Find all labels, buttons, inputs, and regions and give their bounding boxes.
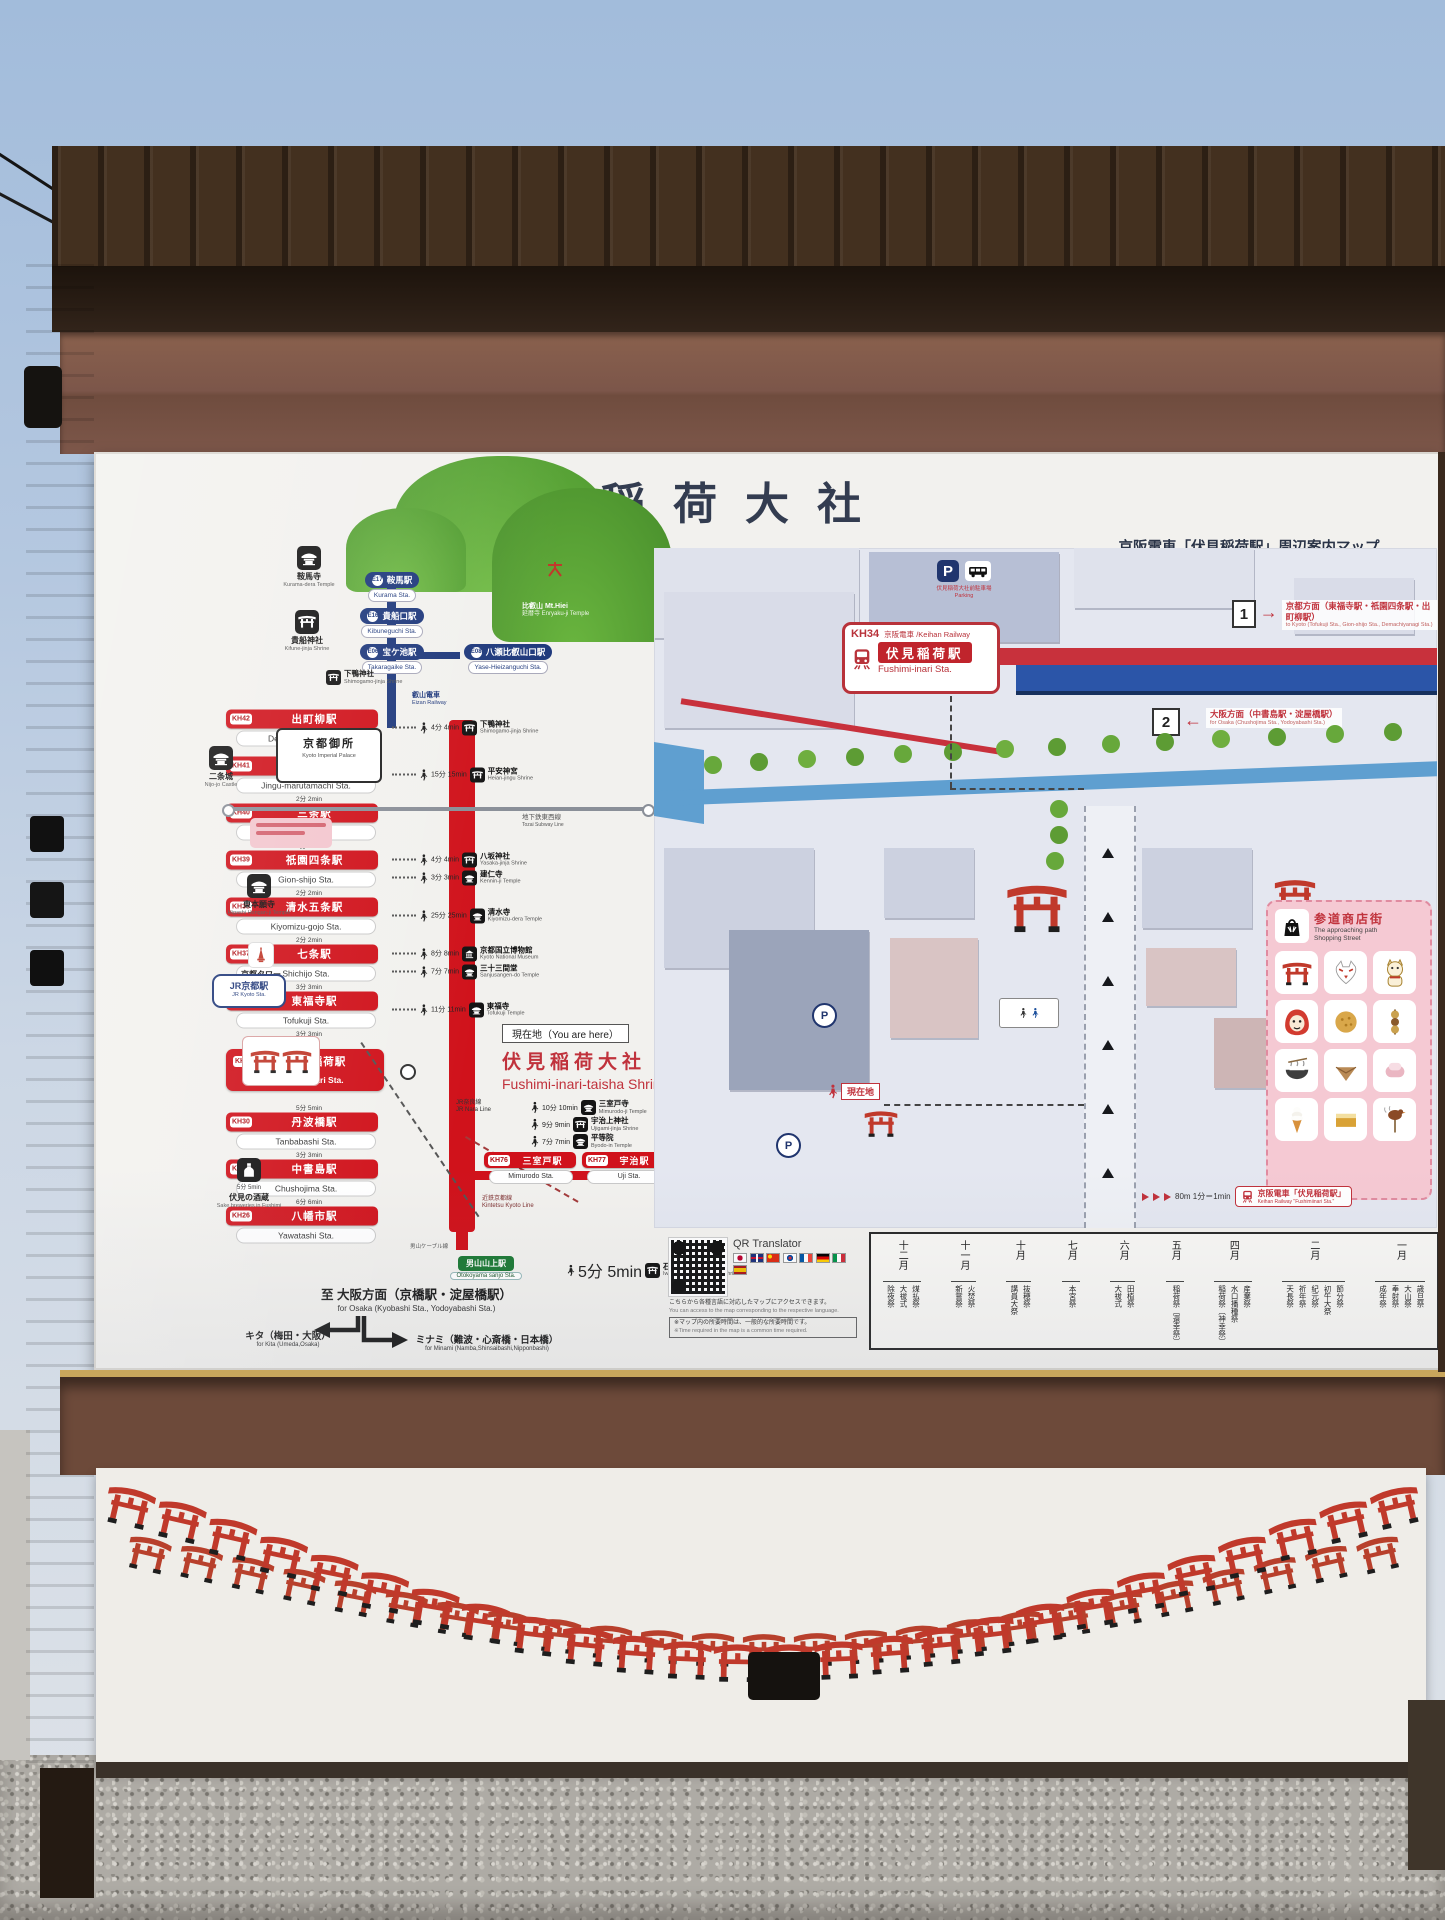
attraction-entry: 3分 3min 建仁寺Kennin-ji Temple [392, 870, 527, 885]
poi-icon [573, 1117, 588, 1132]
landmark-walk-time: 5分 5min [237, 1182, 261, 1191]
torii-icon [864, 1108, 898, 1138]
language-flags [733, 1253, 853, 1275]
walking-person-icon [566, 1264, 575, 1277]
festival-name: 成年祭 [1377, 1285, 1388, 1342]
eizan-station-name-ja: 鞍馬駅 [387, 574, 413, 586]
post-hinge [30, 882, 64, 918]
keihan-station-row: 2分 2min KH37七条駅 Shichijo Sta. 8分 8min 京都… [124, 939, 669, 986]
festival-name: 産業祭 [1241, 1285, 1252, 1342]
calendar-month-column: 二月 節分祭初午大祭紀元祭祈年祭天長祭 [1282, 1240, 1345, 1342]
top-frame-beam [60, 332, 1445, 454]
uji-station: KH77宇治駅 Uji Sta. [582, 1152, 662, 1184]
structure-leg [1408, 1700, 1445, 1870]
mt-hiei-label: 比叡山 Mt.Hiei 延暦寺 Enryaku-ji Temple [522, 602, 589, 619]
month-label: 十一月 [956, 1240, 971, 1279]
station-platform [1016, 665, 1437, 695]
eizan-station-code: E06 [367, 647, 378, 658]
festival-name: 奉射祭 [1390, 1285, 1401, 1342]
walking-person-icon [419, 871, 428, 884]
tozai-subway-label: 地下鉄東西線Tozai Subway Line [522, 814, 564, 828]
fushimi-inari-station-sign: KH34京阪電車 /Keihan Railway 伏見稲荷駅 Fushimi-i… [842, 622, 1000, 694]
attraction-name-en: Yasaka-jinja Shrine [480, 861, 527, 867]
festival-list: 火焚祭新嘗祭 [951, 1285, 976, 1342]
festival-list: 本宮祭 [1065, 1285, 1078, 1342]
walking-route [950, 696, 952, 788]
calendar-month-column: 七月 本宮祭 [1062, 1240, 1080, 1342]
divider [1375, 1281, 1425, 1282]
eizan-station-name-en: Kibuneguchi Sta. [361, 625, 422, 638]
jr-inari-station-marker [400, 1064, 416, 1080]
landmark-icon [237, 1158, 261, 1182]
station-number: KH30 [230, 1116, 252, 1127]
walk-leader-line [392, 915, 416, 917]
eizan-station-name-ja: 貴船口駅 [382, 610, 416, 622]
attraction-name-en: Tofukuji Temple [487, 1011, 525, 1017]
walk-time: 11分 11min [431, 1005, 466, 1015]
keihan-station-row: 2分 2min KH39祇園四条駅 Gion-shijo Sta. 4分 4mi… [124, 845, 669, 892]
walk-leader-line [392, 774, 416, 776]
parking-marker: P [776, 1133, 801, 1158]
gravel-ground [0, 1755, 1445, 1920]
attraction-name-ja: 平安神宮 [488, 767, 533, 776]
station-attractions: 11分 11min 東福寺Tofukuji Temple [392, 1002, 525, 1017]
panel-shadow [96, 1762, 1426, 1778]
post-bracket [24, 366, 62, 428]
uji-attractions: 10分 10min 三室戸寺Mimurodo-ji Temple 9分 9min… [530, 1100, 647, 1149]
shopping-street-legend: 参道商店街 The approaching path Shopping Stre… [1266, 900, 1432, 1200]
qr-translator-block: QR Translator こちらから各種言語に対応したマップにアクセスできます… [669, 1238, 859, 1338]
divider [1110, 1281, 1135, 1282]
festival-name: 歳旦祭 [1415, 1285, 1426, 1342]
attraction-entry: 4分 4min 八坂神社Yasaka-jinja Shrine [392, 852, 527, 867]
flag-icon [832, 1253, 846, 1263]
attraction-name-ja: 建仁寺 [480, 870, 521, 879]
landmark-icon [247, 874, 271, 898]
month-label: 五月 [1167, 1240, 1182, 1279]
eizan-station-name-ja: 八瀬比叡山口駅 [486, 646, 546, 658]
metal-clamp [748, 1652, 820, 1700]
calendar-month-column: 六月 田植祭大祓式 [1110, 1240, 1135, 1342]
poi-icon [462, 720, 477, 735]
attraction-entry: 10分 10min 三室戸寺Mimurodo-ji Temple [530, 1100, 647, 1115]
walk-time: 4分 4min [431, 723, 459, 733]
ride-time: 2分 2min [296, 793, 322, 803]
flag-icon [766, 1253, 780, 1263]
keihan-station-row: 2分 2min KH38清水五条駅 Kiyomizu-gojo Sta. 25分… [124, 892, 669, 939]
walk-time: 25分 25min [431, 911, 467, 921]
daruma [1275, 1000, 1318, 1043]
landmark-name-en: Nijo-jo Castle [205, 782, 238, 788]
landmark-name-ja: 鞍馬寺 [297, 571, 321, 582]
ride-time: 6分 6min [296, 1196, 322, 1206]
calendar-month-column: 十月 抜穂祭講員大祭 [1006, 1240, 1031, 1342]
attraction-name-ja: 八坂神社 [480, 852, 527, 861]
poi-icon [462, 964, 477, 979]
month-label: 四月 [1225, 1240, 1240, 1279]
festival-name: 水口播種祭 [1229, 1285, 1240, 1342]
landmark: 5分 5min 伏見の酒蔵 Sake breweries in Fushimi [204, 1158, 294, 1209]
month-label: 一月 [1393, 1240, 1408, 1279]
structure-leg [40, 1768, 94, 1898]
cable-line-label: 男山ケーブル線 [410, 1242, 448, 1250]
walk-leader-line [392, 877, 416, 879]
month-label: 二月 [1306, 1240, 1321, 1279]
shop-block [1146, 948, 1236, 1006]
festival-name: 稲荷祭〔神幸祭〕 [1216, 1285, 1227, 1342]
street-trees [1050, 800, 1068, 818]
festival-list: 節分祭初午大祭紀元祭祈年祭天長祭 [1282, 1285, 1345, 1342]
jr-kyoto-station-box: JR京都駅 JR Kyoto Sta. [212, 974, 286, 1008]
attraction-name-en: Heian-jingu Shrine [488, 776, 533, 782]
large-building [729, 930, 869, 1090]
to-osaka-note: 至 大阪方面（京橋駅・淀屋橋駅） for Osaka (Kyobashi Sta… [244, 1284, 589, 1313]
divider [1166, 1281, 1184, 1282]
station-attractions: 8分 8min 京都国立博物館Kyoto National Museum 7分 … [392, 946, 539, 979]
torii-illustration-panel [96, 1468, 1426, 1768]
parking-marker: P [812, 1003, 837, 1028]
otokoyama-cable-station: 男山山上駅 Otokoyama sanjo Sta. [438, 1256, 534, 1280]
station-name-ja: 八幡市駅 [255, 1208, 374, 1223]
poi-icon [470, 767, 485, 782]
walk-arrow [1102, 1040, 1114, 1050]
attraction-entry: 4分 4min 下鴨神社Shimogamo-jinja Shrine [392, 720, 538, 735]
station-number: KH26 [230, 1210, 252, 1221]
divider [1062, 1281, 1080, 1282]
attraction-name-ja: 三十三間堂 [480, 964, 539, 973]
bus-icon [965, 561, 991, 581]
walk-time: 4分 4min [431, 855, 459, 865]
eizan-station-code: E08 [471, 647, 482, 658]
shop-item-grid [1275, 951, 1423, 1141]
landmark-icon [295, 610, 319, 634]
attraction-name-ja: 下鴨神社 [480, 720, 538, 729]
attraction-name-en: Kyoto National Museum [480, 955, 538, 961]
eizan-station-name-en: Yase-Hieizanguchi Sta. [468, 661, 547, 674]
parking-label: 伏見稲荷大社前駐車場 Parking [869, 586, 1059, 600]
roof-shadow [52, 266, 1445, 332]
shop-block [890, 938, 978, 1038]
festival-name: 新嘗祭 [953, 1285, 964, 1342]
keihan-station-tag: 京阪電車「伏見稲荷駅」Keihan Railway "Fushimiinari … [1235, 1186, 1352, 1207]
direction-2-osaka: 2 ← 大阪方面（中書島駅・淀屋橋駅）for Osaka (Chushojima… [1152, 708, 1342, 736]
restroom-sign [999, 998, 1059, 1028]
poi-icon [462, 870, 477, 885]
tozai-subway-line [227, 807, 655, 811]
eizan-station-name-ja: 宝ケ池駅 [382, 646, 416, 658]
station-number: KH42 [230, 713, 252, 724]
mountain-hiei [492, 488, 672, 642]
poi-icon [470, 908, 485, 923]
festival-list: 歳旦祭大山祭奉射祭成年祭 [1375, 1285, 1425, 1342]
tree-row [704, 756, 722, 774]
subway-terminal [222, 804, 235, 817]
kushi-dango [1373, 1000, 1416, 1043]
poi-icon [573, 1134, 588, 1149]
walk-leader-line [392, 859, 416, 861]
lucky-cat [1373, 951, 1416, 994]
walk-leader-line [392, 971, 416, 973]
festival-calendar: 一月 歳旦祭大山祭奉射祭成年祭 二月 節分祭初午大祭紀元祭祈年祭天長祭 四月 [869, 1232, 1439, 1350]
walking-person-icon [419, 721, 428, 734]
keihan-station-row: 2分 2min KH40三条駅 Sanjo Sta. [124, 798, 669, 845]
qr-translator-label: QR Translator [733, 1238, 853, 1250]
poi-icon [462, 946, 477, 961]
station-name-ja: 丹波橋駅 [255, 1114, 374, 1129]
train-icon [851, 648, 873, 670]
divider [1006, 1281, 1031, 1282]
landmark: 貴船神社 Kifune-jinja Shrine [262, 610, 352, 652]
attraction-name-en: Kennin-ji Temple [480, 879, 521, 885]
walking-person-icon [530, 1135, 539, 1148]
mimurodo-station: KH76三室戸駅 Mimurodo Sta. [484, 1152, 576, 1184]
divider [1282, 1281, 1345, 1282]
shimogamo-shrine-label: 下鴨神社Shimogamo-jinja Shrine [326, 670, 402, 685]
jr-nara-line-label: JR奈良線JR Nara Line [456, 1100, 491, 1114]
keihan-track [989, 648, 1437, 665]
eizan-station-code: E17 [372, 575, 383, 586]
shopping-street-box [250, 818, 332, 848]
attraction-name-ja: 東福寺 [487, 1002, 525, 1011]
map-block [1074, 548, 1254, 608]
landmark-name-en: Kifune-jinja Shrine [285, 646, 330, 652]
attraction-entry: 25分 25min 清水寺Kiyomizu-dera Temple [392, 908, 542, 923]
station-name-en: Kiyomizu-gojo Sta. [236, 918, 376, 934]
festival-name: 本宮祭 [1067, 1285, 1078, 1342]
ride-time: 3分 3min [296, 1149, 322, 1159]
walk-arrow [1102, 848, 1114, 858]
station-name-ja: 出町柳駅 [255, 711, 374, 726]
landmark-icon [248, 942, 274, 968]
attraction-name-ja: 清水寺 [488, 908, 542, 917]
attraction-entry: 7分 7min 三十三間堂Sanjusangen-do Temple [392, 964, 539, 979]
map-block [664, 592, 854, 728]
noodle-bowl [1275, 1049, 1318, 1092]
station-name-en: Tofukuji Sta. [236, 1012, 376, 1028]
walk-leader-line [392, 953, 416, 955]
attraction-entry: 15分 15min 平安神宮Heian-jingu Shrine [392, 767, 533, 782]
canal-water [654, 742, 704, 824]
walking-person-icon [419, 965, 428, 978]
shopping-bag-icon [1275, 909, 1309, 943]
you-are-here-marker: 現在地 [827, 1083, 880, 1100]
festival-list: 田植祭大祓式 [1110, 1285, 1135, 1342]
festival-name: 煤払祭 [910, 1285, 921, 1342]
festival-name: 祈年祭 [1297, 1285, 1308, 1342]
approach-street [1084, 806, 1136, 1228]
post-hinge [30, 816, 64, 852]
bottom-frame-beam [60, 1370, 1445, 1475]
fox-mask [1324, 951, 1367, 994]
attraction-name-en: Shimogamo-jinja Shrine [480, 729, 538, 735]
station-name-ja: 祇園四条駅 [255, 852, 374, 867]
festival-name: 抜穂祭 [1021, 1285, 1032, 1342]
landmark-name-ja: 伏見の酒蔵 [229, 1192, 269, 1203]
senbei [1324, 1000, 1367, 1043]
walk-leader-line [392, 1009, 416, 1011]
left-frame-post [26, 264, 94, 1774]
festival-name: 節分祭 [1334, 1285, 1345, 1342]
poi-icon [469, 1002, 484, 1017]
station-box: KH26八幡市駅 Yawatashi Sta. [226, 1206, 378, 1243]
festival-name: 大祓式 [898, 1285, 909, 1342]
flag-icon [816, 1253, 830, 1263]
station-attractions: 4分 4min 下鴨神社Shimogamo-jinja Shrine [392, 720, 538, 735]
direction-1-kyoto: 1 → 京都方面（東福寺駅・祇園四条駅・出町柳駅）to Kyoto (Tofuk… [1232, 600, 1437, 630]
walk-leader-line [392, 727, 416, 729]
walk-arrow [1102, 912, 1114, 922]
landmark-name-en: Higashi Hongan-ji Temple [228, 910, 291, 916]
calendar-month-column: 一月 歳旦祭大山祭奉射祭成年祭 [1375, 1240, 1425, 1342]
biwako-canal [654, 760, 1437, 806]
train-icon [1241, 1190, 1254, 1203]
walking-route [950, 788, 1084, 790]
mini-torii [1275, 951, 1318, 994]
landmark: 東本願寺 Higashi Hongan-ji Temple [214, 874, 304, 916]
walking-person-icon [419, 853, 428, 866]
walking-person-icon [530, 1118, 539, 1131]
attraction-entry: 9分 9min 宇治上神社Ujigami-jinja Shrine [530, 1117, 647, 1132]
festival-name: 稲荷祭〔還幸祭〕 [1170, 1285, 1181, 1342]
divider [1214, 1281, 1252, 1282]
festival-name: 除夜祭 [885, 1285, 896, 1342]
torii-icon [326, 670, 341, 685]
festival-list: 抜穂祭講員大祭 [1006, 1285, 1031, 1342]
guidance-street-map: P 伏見稲荷大社前駐車場 Parking KH34京阪電車 /Keihan Ra… [654, 548, 1437, 1228]
arrow-left-icon: ← [1184, 708, 1202, 732]
attraction-name-en: Sanjusangen-do Temple [480, 973, 539, 979]
kintetsu-line-label: 近鉄京都線Kintetsu Kyoto Line [482, 1196, 534, 1210]
landmark-icon [297, 546, 321, 570]
arrow-right-icon: → [1260, 600, 1278, 624]
attraction-name-en: Kiyomizu-dera Temple [488, 917, 542, 923]
attraction-name-ja: 京都国立博物館 [480, 946, 538, 955]
landmark-name-en: Kurama-dera Temple [283, 582, 334, 588]
calendar-month-column: 五月 稲荷祭〔還幸祭〕 [1166, 1240, 1184, 1342]
ride-time: 5分 5min [296, 1102, 322, 1112]
right-frame-edge [1438, 452, 1445, 1372]
keihan-station-row: KH42出町柳駅 Demachiyanagi Sta. 4分 4min 下鴨神社… [124, 704, 669, 751]
walk-time: 3分 3min [431, 873, 459, 883]
station-number: KH39 [230, 854, 252, 865]
festival-name: 大山祭 [1402, 1285, 1413, 1342]
month-label: 十二月 [894, 1240, 909, 1279]
flag-icon [799, 1253, 813, 1263]
mochi [1373, 1049, 1416, 1092]
eizan-station: E16貴船口駅 Kibuneguchi Sta. [337, 608, 447, 638]
festival-name: 火焚祭 [965, 1285, 976, 1342]
landmark-name-ja: 二条城 [209, 771, 233, 782]
torii-icon [645, 1263, 660, 1278]
map-block [1142, 848, 1252, 928]
walking-person-icon [419, 947, 428, 960]
qr-note: こちらから各種言語に対応したマップにアクセスできます。 You can acce… [669, 1300, 859, 1314]
festival-name: 講員大祭 [1008, 1285, 1019, 1342]
festival-list: 産業祭水口播種祭稲荷祭〔神幸祭〕 [1214, 1285, 1252, 1342]
walking-person-icon [419, 909, 428, 922]
festival-name: 天長祭 [1284, 1285, 1295, 1342]
station-attractions: 15分 15min 平安神宮Heian-jingu Shrine [392, 767, 533, 782]
festival-name: 田植祭 [1125, 1285, 1136, 1342]
map-block [884, 848, 974, 918]
parking-icon: P [937, 560, 959, 582]
soft-ice-cream [1275, 1098, 1318, 1141]
senbon-torii-thumbnail [242, 1036, 320, 1086]
scale-legend: 80m 1分＝1min 京阪電車「伏見稲荷駅」Keihan Railway "F… [1142, 1186, 1352, 1207]
walking-person-icon [419, 1003, 428, 1016]
yatsuhashi [1324, 1049, 1367, 1092]
poi-icon [462, 852, 477, 867]
festival-name: 大祓式 [1112, 1285, 1123, 1342]
walk-arrow [1102, 976, 1114, 986]
festival-list: 稲荷祭〔還幸祭〕 [1168, 1285, 1181, 1342]
divider [951, 1281, 976, 1282]
direction-arrows [306, 1314, 416, 1358]
walk-arrow [1102, 1104, 1114, 1114]
station-box: KH30丹波橋駅 Tanbabashi Sta. [226, 1112, 378, 1149]
eizan-station: E08八瀬比叡山口駅 Yase-Hieizanguchi Sta. [446, 644, 570, 674]
senbon-torii-garland [96, 1468, 1426, 1768]
landmark-name-ja: 貴船神社 [291, 635, 323, 646]
baked-sweets [1324, 1098, 1367, 1141]
station-name-en: Yawatashi Sta. [236, 1227, 376, 1243]
festival-list: 煤払祭大祓式除夜祭 [883, 1285, 921, 1342]
calendar-month-column: 十一月 火焚祭新嘗祭 [951, 1240, 976, 1342]
time-disclaimer: ※マップ内の所要時間は、一般的な所要時間です。 ※Time required i… [669, 1317, 857, 1337]
month-label: 十月 [1011, 1240, 1026, 1279]
kyoto-imperial-palace-box: 京都御所 Kyoto Imperial Palace [276, 728, 382, 783]
qr-code [669, 1238, 727, 1296]
walk-time: 15分 15min [431, 770, 467, 780]
attraction-entry: 7分 7min 平等院Byodo-in Temple [530, 1134, 647, 1149]
landmark: 鞍馬寺 Kurama-dera Temple [264, 546, 354, 588]
attraction-entry: 8分 8min 京都国立博物館Kyoto National Museum [392, 946, 539, 961]
calendar-month-column: 四月 産業祭水口播種祭稲荷祭〔神幸祭〕 [1214, 1240, 1252, 1342]
flag-icon [783, 1253, 797, 1263]
eizan-station-code: E16 [367, 611, 378, 622]
landmark-name-en: Sake breweries in Fushimi [217, 1203, 282, 1209]
information-board: 伏見稲荷大社 京阪電車・観光マップ Keihan Railway / Touri… [94, 452, 1442, 1370]
station-attractions: 25分 25min 清水寺Kiyomizu-dera Temple [392, 908, 542, 923]
walking-person-icon [530, 1101, 539, 1114]
landmark: 二条城 Nijo-jo Castle [184, 746, 258, 788]
calendar-month-column: 十二月 煤払祭大祓式除夜祭 [883, 1240, 921, 1342]
landmark-name-ja: 東本願寺 [243, 899, 275, 910]
you-are-here-tag: 現在地（You are here） [502, 1024, 629, 1043]
post-hinge [30, 950, 64, 986]
walk-time: 8分 8min [431, 949, 459, 959]
landmark-icon [209, 746, 233, 770]
walking-person-icon [419, 768, 428, 781]
month-label: 七月 [1063, 1240, 1078, 1279]
daimonji-mark [546, 560, 564, 578]
walking-route [884, 1104, 1084, 1106]
walk-time: 7分 7min [431, 967, 459, 977]
large-torii-icon [1006, 880, 1068, 934]
divider [883, 1281, 921, 1282]
festival-name: 初午大祭 [1322, 1285, 1333, 1342]
poi-icon [581, 1100, 596, 1115]
walk-arrow [1102, 1168, 1114, 1178]
minami-label: ミナミ（難波・心斎橋・日本橋） for Minami (Namba,Shinsa… [412, 1332, 562, 1352]
festival-name: 紀元祭 [1309, 1285, 1320, 1342]
eizan-station-name-en: Kurama Sta. [368, 589, 416, 602]
station-name-en: Tanbabashi Sta. [236, 1133, 376, 1149]
flag-icon [750, 1253, 764, 1263]
attraction-entry: 11分 11min 東福寺Tofukuji Temple [392, 1002, 525, 1017]
station-attractions: 4分 4min 八坂神社Yasaka-jinja Shrine 3分 3min … [392, 852, 527, 885]
grilled-sparrow [1373, 1098, 1416, 1141]
